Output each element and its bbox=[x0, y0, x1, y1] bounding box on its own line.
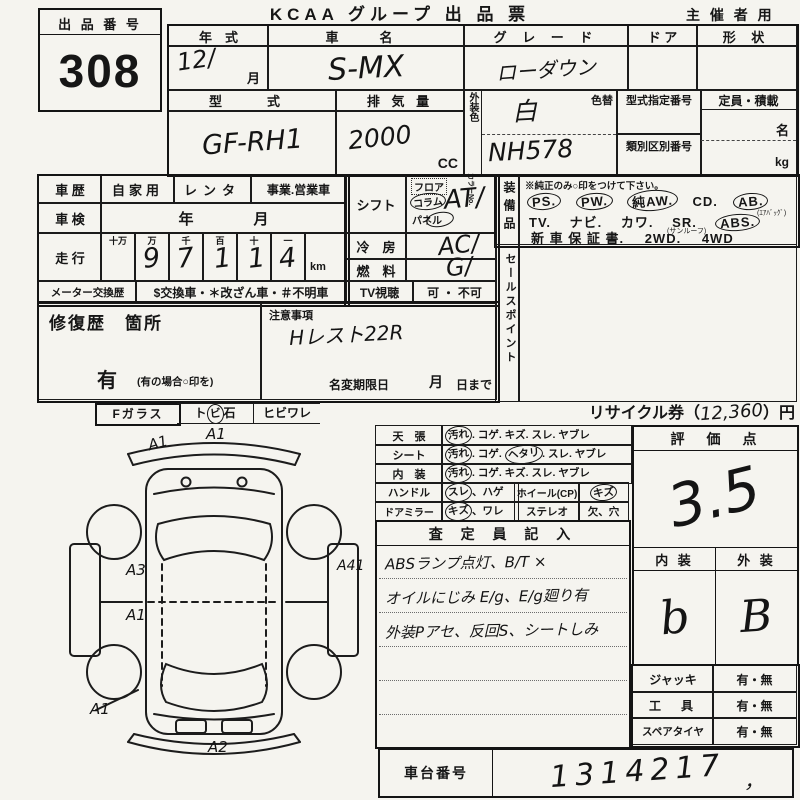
odo-unit-cell: km bbox=[304, 232, 347, 282]
spare-tire-label: スペアタイヤ bbox=[632, 717, 714, 745]
equipment-cell: ※純正のみ○印をつけて下さい。 PS. PW. 純AW. CD. AB. (ｴｱ… bbox=[518, 175, 797, 245]
cond-interior-label: 内 装 bbox=[375, 463, 443, 484]
rear-plate bbox=[222, 720, 252, 733]
sales-point-label: セールスポイント bbox=[502, 253, 518, 365]
repair-cell: 修復歴 箇所 有 (有の場合○印を) bbox=[38, 302, 262, 400]
name-cell: S-MX bbox=[267, 45, 465, 91]
model-header: 型 式 bbox=[168, 89, 337, 112]
repair-has: 有 bbox=[97, 364, 117, 393]
interior-grade: b bbox=[657, 588, 692, 645]
cond-seat-mid: . コゲ. bbox=[472, 448, 505, 460]
shift-value: AT∕ bbox=[443, 182, 486, 215]
equip-ab-note: (ｴｱﾊﾞｯｸﾞ) bbox=[757, 208, 786, 218]
cooling-label: 冷 房 bbox=[345, 232, 407, 260]
audience-label: 主 催 者 用 bbox=[686, 5, 775, 25]
evaluation-box: 評 価 点 3.5 内 装 外 装 b B bbox=[632, 425, 799, 666]
washer-nozzle bbox=[238, 478, 247, 487]
evaluation-score: 3.5 bbox=[661, 453, 767, 541]
cond-seat-circled1: 汚れ bbox=[444, 444, 473, 465]
damage-label: A1 bbox=[126, 606, 146, 624]
door-cell bbox=[627, 45, 698, 91]
note-line bbox=[379, 680, 627, 681]
cond-seat-label: シート bbox=[375, 444, 443, 465]
lot-number-value: 308 bbox=[40, 35, 160, 107]
fglass-opt1b: ビ bbox=[206, 403, 225, 424]
grade-header: グ レ ー ド bbox=[463, 25, 629, 47]
capacity-person-unit: 名 bbox=[776, 120, 789, 139]
damage-label: A3 bbox=[126, 561, 146, 579]
damage-label: A41 bbox=[337, 558, 364, 574]
cond-mirror-value: キズ、ワレ bbox=[441, 501, 519, 522]
shaken-value: 年 月 bbox=[100, 202, 347, 234]
rename-label: 名変期限日 bbox=[329, 376, 389, 393]
fglass-opt1-cell: トビ石 bbox=[177, 403, 253, 424]
chassis-box: 車台番号 1314217 ， bbox=[378, 748, 794, 798]
shaken-label: 車 検 bbox=[38, 202, 102, 234]
grade-value: ローダウン bbox=[495, 50, 597, 86]
auction-sheet: KCAA グループ 出 品 票 主 催 者 用 出 品 番 号 308 年 式 … bbox=[0, 0, 800, 800]
recycle-line: リサイクル券（12,360）円 bbox=[400, 399, 795, 423]
displacement-unit: CC bbox=[438, 155, 458, 171]
hood-line bbox=[154, 488, 274, 495]
fglass-label-cell: Fガラス bbox=[95, 403, 181, 426]
color-cell: 外装色 カラーNo. 色替 白 NH578 bbox=[463, 89, 618, 175]
washer-nozzle bbox=[182, 478, 191, 487]
odo-digit: 1 bbox=[246, 242, 266, 275]
tailgate-line bbox=[154, 714, 274, 720]
damage-label: A1 bbox=[206, 425, 226, 443]
rename-day: 日まで bbox=[456, 376, 492, 393]
shift-cell: フロア コラム パネル AT∕ bbox=[405, 175, 497, 234]
equipment-side-cell: 装備品 bbox=[495, 175, 520, 245]
spare-tire-value: 有・無 bbox=[712, 717, 797, 745]
damage-label: A2 bbox=[208, 738, 228, 756]
equip-ps: PS. bbox=[526, 192, 561, 211]
wheel-front-left bbox=[87, 505, 141, 559]
fglass-opt2-cell: ヒビワレ bbox=[253, 403, 320, 424]
color-label: 外装色 bbox=[465, 92, 479, 122]
equip-aw: 純AW. bbox=[626, 188, 678, 212]
cond-roof-circled: 汚れ bbox=[444, 425, 473, 446]
inspector-note: オイルにじみ E/g、E/g廻り有 bbox=[385, 584, 588, 609]
history-rental: レンタ bbox=[173, 175, 252, 204]
cond-handle-circled: スレ bbox=[444, 482, 473, 503]
model-cell: GF-RH1 bbox=[168, 110, 337, 175]
recycle-prefix: リサイクル券（ bbox=[589, 405, 700, 422]
cond-wheel-value: キズ bbox=[578, 482, 629, 503]
sales-point-strip: セールスポイント bbox=[495, 244, 520, 402]
capacity-label: 定員・積載 bbox=[701, 90, 796, 110]
color-value: 白 bbox=[511, 91, 538, 128]
repair-has-note: (有の場合○印を) bbox=[137, 374, 213, 389]
tools-value: 有・無 bbox=[712, 691, 797, 719]
cond-wheel-circled: キズ bbox=[589, 483, 617, 502]
door-header: ド ア bbox=[627, 25, 698, 47]
odo-col-1: 一4 bbox=[270, 232, 306, 282]
chassis-label: 車台番号 bbox=[380, 750, 493, 796]
cond-mirror-rest: 、ワレ bbox=[472, 505, 504, 517]
displacement-header: 排 気 量 bbox=[335, 89, 465, 112]
left-side-panel bbox=[70, 544, 100, 656]
odometer-label: 走 行 bbox=[38, 232, 102, 282]
chassis-tick-mark: ， bbox=[744, 765, 764, 794]
cond-stereo-value: 欠、穴 bbox=[578, 501, 629, 522]
year-header: 年 式 bbox=[168, 25, 269, 47]
cond-roof-label: 天 張 bbox=[375, 425, 443, 446]
recycle-amount: 12,360 bbox=[699, 400, 763, 425]
tools-label: 工 具 bbox=[632, 691, 714, 719]
fuel-value: G∕ bbox=[445, 252, 474, 283]
odo-col-10k: 万9 bbox=[134, 232, 170, 282]
fuel-label: 燃 料 bbox=[345, 258, 407, 282]
class-no-cell: 類別区別番号 bbox=[616, 133, 702, 175]
rear-window bbox=[161, 664, 267, 711]
cond-mirror-label: ドアミラー bbox=[375, 501, 443, 522]
cond-seat-value: 汚れ. コゲ. ヘタリ. スレ. ヤブレ bbox=[441, 444, 632, 465]
exterior-header: 外 装 bbox=[716, 548, 797, 570]
repair-label: 修復歴 箇所 bbox=[49, 309, 163, 334]
cond-handle-rest: 、ハゲ bbox=[472, 486, 504, 498]
color-change-label: 色替 bbox=[591, 92, 613, 108]
meter-history-label: メーター交換歴 bbox=[38, 280, 137, 304]
note-line bbox=[379, 612, 627, 613]
equip-cd: CD. bbox=[693, 194, 718, 209]
model-value: GF-RH1 bbox=[201, 124, 304, 162]
grade-cell: ローダウン bbox=[463, 45, 629, 91]
odo-unit: km bbox=[310, 261, 326, 273]
odo-col-label: 十万 bbox=[101, 233, 135, 247]
rename-month: 月 bbox=[429, 372, 443, 392]
wheel-rear-left bbox=[87, 645, 141, 699]
evaluation-header: 評 価 点 bbox=[634, 427, 797, 451]
year-value: 12∕ bbox=[175, 43, 217, 76]
windshield bbox=[156, 516, 272, 560]
odo-digit: 4 bbox=[277, 242, 297, 275]
odo-col-100: 百1 bbox=[202, 232, 238, 282]
fglass-label: Fガラス bbox=[97, 405, 179, 423]
color-no-value: NH578 bbox=[487, 134, 574, 167]
fglass-opt1c: 石 bbox=[224, 406, 236, 420]
cond-handle-value: スレ、ハゲ bbox=[441, 482, 519, 503]
history-private: 自家用 bbox=[100, 175, 175, 204]
note-line bbox=[379, 646, 627, 647]
odo-digit: 7 bbox=[175, 242, 195, 275]
fglass-opt1a: ト bbox=[194, 406, 206, 420]
color-cell-divider bbox=[481, 90, 482, 174]
odo-col-1k: 千7 bbox=[168, 232, 204, 282]
history-label: 車 歴 bbox=[38, 175, 102, 204]
recycle-suffix: ）円 bbox=[763, 405, 795, 422]
displacement-value: 2000 bbox=[347, 120, 413, 155]
odo-col-10: 十1 bbox=[236, 232, 272, 282]
cond-mirror-circled: キズ bbox=[444, 501, 473, 522]
inspector-header: 査 定 員 記 入 bbox=[377, 522, 629, 546]
wheel-front-right bbox=[287, 505, 341, 559]
interior-grade-cell: b bbox=[634, 569, 716, 664]
name-header: 車 名 bbox=[267, 25, 465, 47]
cond-roof-value: 汚れ. コゲ. キズ. スレ. ヤブレ bbox=[441, 425, 632, 446]
wheel-rear-right bbox=[287, 645, 341, 699]
tv-label: TV視聴 bbox=[345, 280, 414, 304]
year-cell: 12∕ 月 bbox=[168, 45, 269, 91]
jack-value: 有・無 bbox=[712, 665, 797, 693]
fuel-cell: G∕ bbox=[405, 258, 497, 282]
car-diagram bbox=[58, 424, 370, 776]
class-no-label: 類別区別番号 bbox=[617, 134, 701, 154]
name-value: S-MX bbox=[327, 49, 405, 88]
history-business: 事業.営業車 bbox=[250, 175, 347, 204]
displacement-cell: 2000 CC bbox=[335, 110, 465, 175]
shape-cell bbox=[696, 45, 797, 91]
lot-number-label: 出 品 番 号 bbox=[40, 10, 160, 35]
month-suffix: 月 bbox=[247, 68, 260, 87]
cond-interior-circled: 汚れ bbox=[444, 463, 473, 484]
type-no-label: 型式指定番号 bbox=[617, 90, 701, 108]
odo-digit: 1 bbox=[212, 242, 232, 275]
inspector-note: 外装Pアセ、反回S、シートしみ bbox=[385, 618, 599, 643]
equip-pw: PW. bbox=[575, 192, 613, 212]
front-bumper-inner bbox=[133, 455, 295, 466]
chassis-value: 1314217 bbox=[549, 748, 727, 795]
cond-seat-rest: . スレ. ヤブレ bbox=[542, 448, 606, 460]
caution-cell: 注意事項 Hレスト22R 名変期限日 月 日まで bbox=[260, 302, 497, 400]
equipment-side-label: 装備品 bbox=[501, 181, 518, 235]
tv-value: 可 ・ 不可 bbox=[412, 280, 497, 304]
damage-label: A1 bbox=[90, 700, 110, 718]
jack-label: ジャッキ bbox=[632, 665, 714, 693]
fglass-opt2: ヒビワレ bbox=[263, 406, 311, 420]
odo-col-100k: 十万 bbox=[100, 232, 136, 282]
lot-number-box: 出 品 番 号 308 bbox=[38, 8, 162, 112]
cond-handle-label: ハンドル bbox=[375, 482, 443, 503]
note-line bbox=[379, 714, 627, 715]
odo-digit: 9 bbox=[141, 242, 161, 275]
capacity-kg-unit: kg bbox=[775, 155, 789, 169]
cond-interior-value: 汚れ. コゲ. キズ. スレ. ヤブレ bbox=[441, 463, 632, 484]
type-no-cell: 型式指定番号 bbox=[616, 89, 702, 135]
caution-value: Hレスト22R bbox=[288, 316, 404, 351]
cond-wheel-label: ホイール(CP) bbox=[514, 482, 580, 503]
capacity-cell: 定員・積載 名 kg bbox=[700, 89, 797, 175]
exterior-grade-cell: B bbox=[716, 569, 797, 664]
shape-header: 形 状 bbox=[696, 25, 797, 47]
sales-point-area bbox=[518, 244, 797, 402]
cond-interior-rest: . コゲ. キズ. スレ. ヤブレ bbox=[472, 467, 590, 479]
cond-stereo-label: ステレオ bbox=[514, 501, 580, 522]
cond-roof-rest: . コゲ. キズ. スレ. ヤブレ bbox=[472, 429, 590, 441]
note-line bbox=[379, 578, 627, 579]
meter-history-value: $交換車・＊改ざん車・＃不明車 bbox=[135, 280, 347, 304]
exterior-grade: B bbox=[739, 590, 775, 643]
interior-header: 内 装 bbox=[634, 548, 716, 570]
inspector-box: 査 定 員 記 入 ABSランプ点灯、B/T × オイルにじみ E/g、E/g廻… bbox=[375, 520, 631, 749]
shift-label: シフト bbox=[345, 175, 407, 234]
rear-plate bbox=[176, 720, 206, 733]
inspector-note: ABSランプ点灯、B/T × bbox=[385, 551, 547, 575]
